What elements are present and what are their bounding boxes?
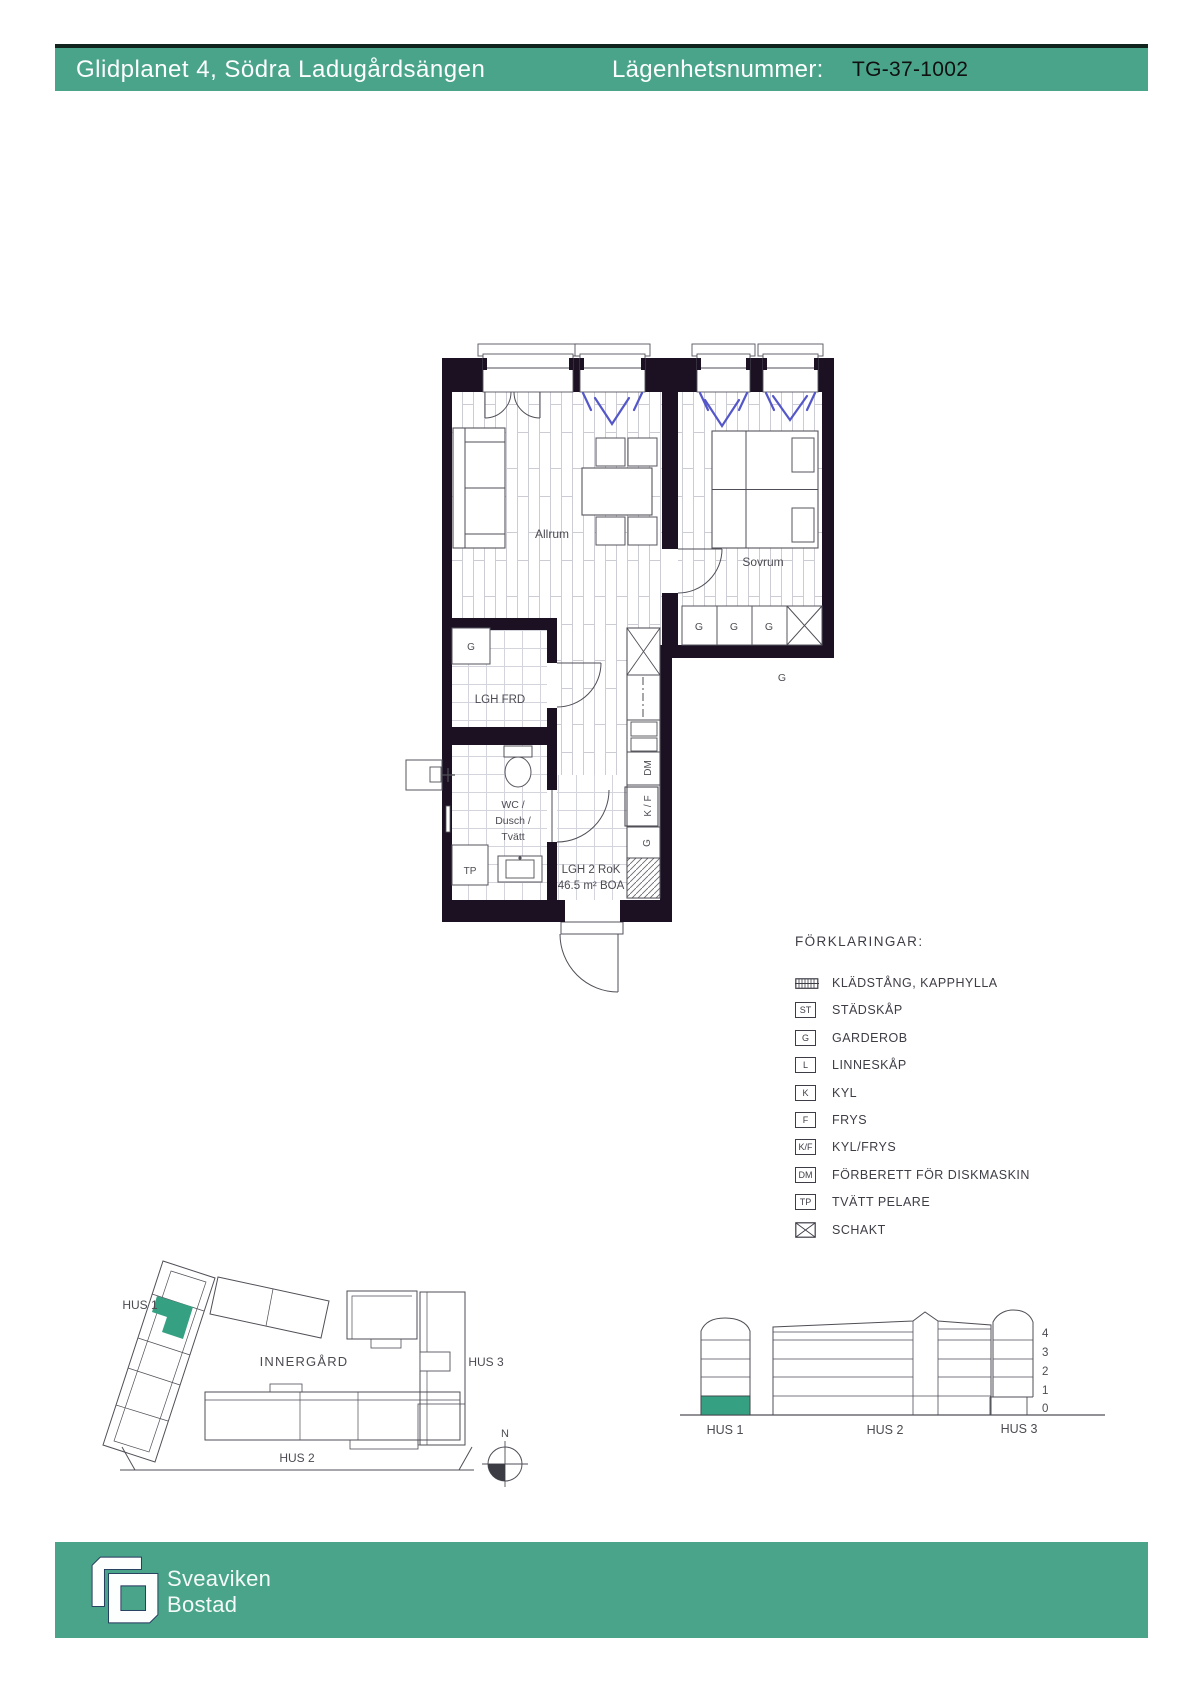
bedroom-label: Sovrum xyxy=(742,555,783,569)
highlighted-apartment xyxy=(152,1296,193,1339)
legend-item-wardrobe: G GARDEROB xyxy=(795,1029,1125,1047)
double-bed xyxy=(712,431,818,548)
dm-symbol: DM xyxy=(795,1167,816,1183)
shower-mixer xyxy=(406,760,442,790)
coat-rack-area xyxy=(627,858,660,898)
legend: FÖRKLARINGAR: KLÄDSTÅNG, KAPPHYLLA ST ST… xyxy=(795,934,1125,1239)
legend-item-shaft: SCHAKT xyxy=(795,1221,1125,1239)
site-hus2-label: HUS 2 xyxy=(279,1451,315,1465)
g-symbol: G xyxy=(795,1030,816,1046)
entry-door xyxy=(560,900,625,992)
toilet-tank xyxy=(504,746,532,757)
elevation-hus3-label: HUS 3 xyxy=(1001,1422,1038,1436)
bath-label-2: Dusch / xyxy=(495,815,531,827)
dishwasher-label: DM xyxy=(643,760,654,776)
elevation-hus2 xyxy=(773,1312,991,1415)
elevation-hus2-label: HUS 2 xyxy=(867,1423,904,1437)
floor-number-1: 1 xyxy=(1042,1385,1048,1397)
floor-plan: Allrum Sovrum LGH FRD WC / Dusch / Tvätt… xyxy=(406,344,834,992)
brand-name: Sveaviken Bostad xyxy=(167,1566,271,1618)
floor-number-0: 0 xyxy=(1042,1403,1048,1415)
wardrobe-label-frd: G xyxy=(467,642,475,653)
wardrobe-label-kitchen: G xyxy=(642,839,653,847)
site-hus1-label: HUS 1 xyxy=(122,1298,158,1312)
elevation-hus1-label: HUS 1 xyxy=(707,1423,744,1437)
st-symbol: ST xyxy=(795,1002,816,1018)
l-symbol: L xyxy=(795,1057,816,1073)
apartment-type-label: LGH 2 RoK xyxy=(562,864,621,876)
site-plan: HUS 1 INNERGÅRD HUS 3 HUS 2 N xyxy=(103,1261,528,1487)
courtyard-label: INNERGÅRD xyxy=(260,1354,349,1369)
highlighted-floor xyxy=(701,1396,750,1415)
apartment-area-label: 46.5 m² BOA xyxy=(558,880,625,892)
north-label: N xyxy=(501,1428,509,1440)
legend-item-coatrack: KLÄDSTÅNG, KAPPHYLLA xyxy=(795,974,1125,992)
shaft-icon xyxy=(795,1222,816,1238)
legend-item-fridge: K KYL xyxy=(795,1084,1125,1102)
building-elevation: 4 3 2 1 0 HUS 1 HUS 2 HUS 3 xyxy=(680,1310,1105,1437)
brand-line-1: Sveaviken xyxy=(167,1566,271,1592)
architectural-drawing: Allrum Sovrum LGH FRD WC / Dusch / Tvätt… xyxy=(0,0,1200,1697)
living-room-label: Allrum xyxy=(535,527,569,541)
sveaviken-logo-icon xyxy=(88,1553,162,1627)
site-hus2 xyxy=(205,1384,465,1449)
legend-item-dishwasher: DM FÖRBERETT FÖR DISKMASKIN xyxy=(795,1166,1125,1184)
legend-item-cleaning-cabinet: ST STÄDSKÅP xyxy=(795,1001,1125,1019)
site-hus3 xyxy=(347,1291,465,1445)
elevation-hus1 xyxy=(701,1318,750,1415)
bath-label-3: Tvätt xyxy=(501,831,524,843)
f-symbol: F xyxy=(795,1112,816,1128)
sofa xyxy=(453,428,505,548)
tp-symbol: TP xyxy=(795,1194,816,1210)
coat-rack-icon xyxy=(795,976,819,991)
wardrobe-label-outside: G xyxy=(778,672,786,684)
laundry-tower-label: TP xyxy=(464,866,477,877)
brand-line-2: Bostad xyxy=(167,1592,271,1618)
k-symbol: K xyxy=(795,1085,816,1101)
towel-rail xyxy=(446,806,450,832)
bath-label-1: WC / xyxy=(501,799,524,811)
wardrobe-label-2: G xyxy=(730,621,738,633)
footer-bar: Sveaviken Bostad xyxy=(55,1542,1148,1638)
elevation-hus3 xyxy=(990,1310,1033,1415)
legend-item-fridge-freezer: K/F KYL/FRYS xyxy=(795,1138,1125,1156)
elevation-labels: HUS 1 HUS 2 HUS 3 xyxy=(707,1422,1038,1437)
legend-item-linen-cabinet: L LINNESKÅP xyxy=(795,1056,1125,1074)
floor-number-2: 2 xyxy=(1042,1366,1048,1378)
kf-symbol: K/F xyxy=(795,1139,816,1155)
storage-label: LGH FRD xyxy=(475,694,525,706)
toilet-bowl xyxy=(505,757,531,787)
floor-numbers: 4 3 2 1 0 xyxy=(1042,1328,1049,1415)
floor-number-3: 3 xyxy=(1042,1347,1048,1359)
site-hus3-label: HUS 3 xyxy=(468,1355,504,1369)
laundry-tower-box xyxy=(452,845,488,885)
north-compass-icon xyxy=(482,1441,528,1487)
fridge-freezer-label: K / F xyxy=(643,795,654,816)
legend-title: FÖRKLARINGAR: xyxy=(795,934,1125,949)
wardrobe-label-3: G xyxy=(765,621,773,633)
legend-item-freezer: F FRYS xyxy=(795,1111,1125,1129)
floor-number-4: 4 xyxy=(1042,1328,1049,1340)
legend-item-laundry-tower: TP TVÄTT PELARE xyxy=(795,1193,1125,1211)
wardrobe-label-1: G xyxy=(695,621,703,633)
floorplan-document: Glidplanet 4, Södra Ladugårdsängen Lägen… xyxy=(0,0,1200,1697)
